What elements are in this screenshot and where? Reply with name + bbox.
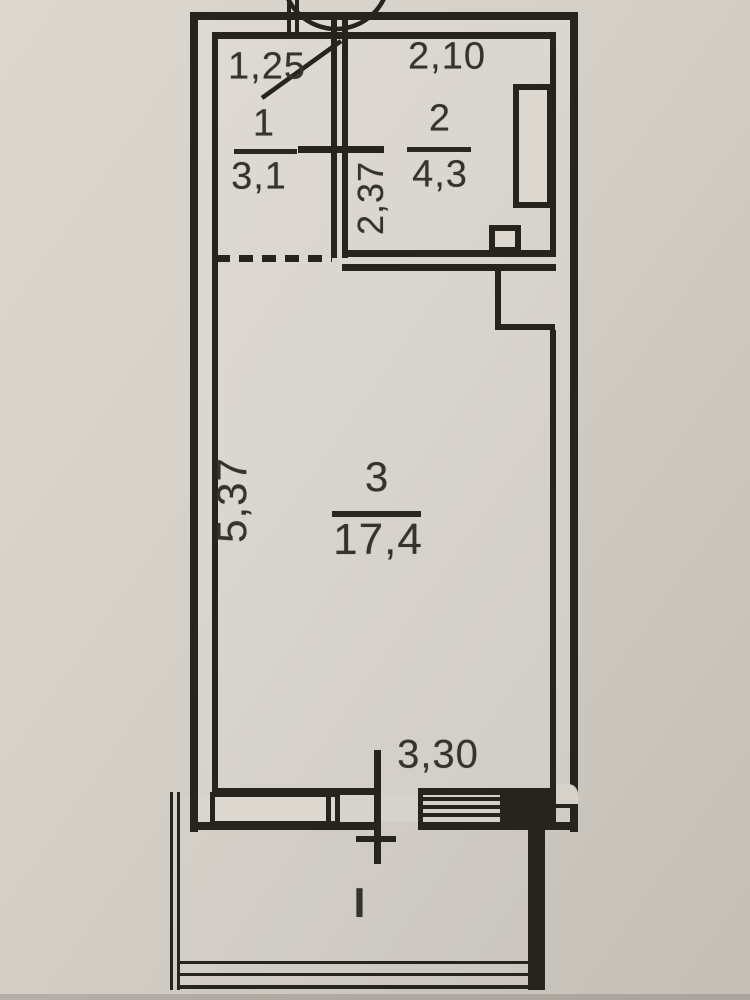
room2-area: 4,3	[412, 154, 468, 197]
photo-edge-shadow	[0, 994, 750, 1000]
room2-number: 2	[429, 98, 451, 141]
dim-room3-depth: 5,37	[208, 457, 256, 543]
room2-fraction-bar	[407, 147, 471, 152]
dim-room2-width: 2,10	[408, 36, 486, 79]
dim-room2-depth: 2,37	[350, 161, 392, 235]
dim-hall-width: 1,25	[228, 46, 306, 89]
room1-area: 3,1	[231, 156, 287, 199]
room3-number: 3	[365, 453, 389, 501]
entrance-door-swing-arc	[283, 0, 389, 29]
room1-fraction-bar	[234, 149, 297, 154]
room1-number: 1	[253, 103, 275, 146]
axis-label: I	[354, 879, 367, 927]
floor-plan: 1,25 2,10 1 3,1 2 4,3 2,37 5,37 3 17,4 3…	[0, 0, 750, 1000]
dim-room3-width: 3,30	[397, 733, 479, 778]
room3-area: 17,4	[333, 515, 423, 565]
floor-plan-photo: { "document": { "type": "apartment-floor…	[0, 0, 750, 1000]
